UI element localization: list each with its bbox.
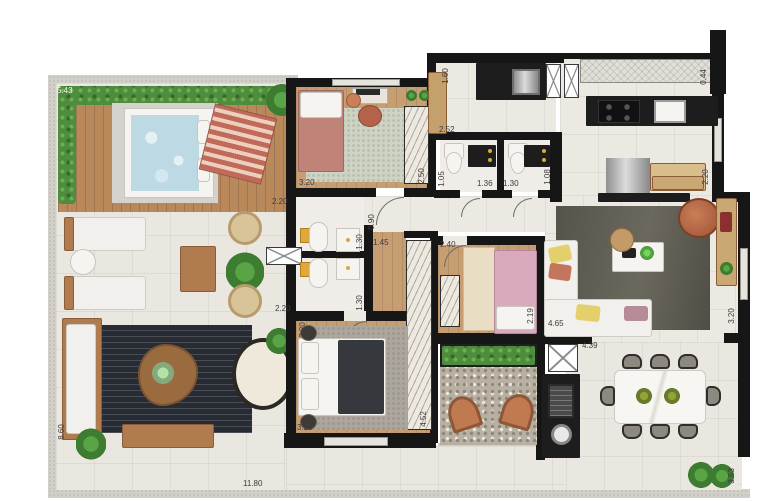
desk-chair	[358, 105, 382, 127]
bedside-basket	[346, 93, 361, 108]
refrigerator	[606, 158, 650, 198]
wall	[738, 347, 750, 457]
grill	[548, 384, 574, 418]
table-flowers	[152, 362, 174, 384]
bbq-sink	[551, 424, 572, 445]
dimension-label: 1.30	[356, 234, 364, 250]
wall	[724, 333, 750, 343]
shaft-door	[546, 64, 561, 98]
dining-chair	[622, 424, 642, 439]
laundry-sink	[512, 69, 540, 95]
dimension-label: 2.40	[440, 241, 456, 249]
bedroom2-wardrobe	[440, 275, 460, 327]
wall	[430, 333, 545, 344]
dining-chair	[650, 424, 670, 439]
wall	[288, 188, 376, 197]
desk-monitor	[356, 89, 380, 95]
wall-column	[710, 30, 726, 94]
kitchen-cabinet	[652, 176, 704, 190]
sun-lounger-head	[64, 276, 74, 310]
dimension-label: 11.80	[243, 480, 262, 488]
dimension-label: 3.20	[297, 424, 313, 432]
floor-plan: 5.43 1.60 0.44 3.20 2.50 2.52 1.05 1.36 …	[0, 0, 773, 501]
wood-bench	[122, 424, 214, 448]
dimension-label: 1.30	[356, 295, 364, 311]
dimension-label: 5.43	[57, 87, 73, 95]
bath-c-vanity	[468, 145, 496, 167]
corridor-wardrobe	[406, 240, 432, 430]
hot-tub-water	[131, 115, 199, 191]
wicker-chair	[228, 284, 262, 318]
dimension-label: 1.05	[438, 171, 446, 187]
round-side-table	[610, 228, 634, 252]
master-duvet	[338, 340, 384, 414]
bedroom1-pillow	[300, 92, 342, 118]
bath-a-tub	[309, 222, 328, 252]
wall	[434, 190, 460, 198]
window	[324, 437, 388, 446]
window	[740, 248, 748, 300]
dining-chair	[622, 354, 642, 369]
terrace-edge-bottom	[48, 489, 750, 498]
sun-lounger	[64, 276, 146, 310]
dimension-label: 2.20	[275, 305, 291, 313]
dimension-label: 4.65	[548, 320, 564, 328]
table-flowers	[640, 246, 654, 260]
dimension-label: 2.20	[299, 322, 307, 338]
dimension-label: 3.20	[728, 308, 736, 324]
wall	[538, 190, 562, 198]
dimension-label: 0.90	[368, 214, 376, 230]
dining-chair	[650, 354, 670, 369]
door-opening	[344, 311, 366, 321]
centerpiece	[636, 388, 652, 404]
bath-b-tub	[309, 258, 328, 288]
kitchen-top-counter	[580, 59, 711, 83]
dimension-label: 1.08	[544, 169, 552, 185]
dimension-label: 1.60	[442, 68, 450, 84]
window	[332, 79, 400, 86]
wall	[434, 53, 564, 63]
cushion-terracotta	[548, 263, 572, 282]
console-decor	[720, 212, 732, 232]
cushion-mauve	[624, 306, 648, 321]
wall	[294, 251, 366, 258]
tv-console	[598, 193, 690, 202]
dimension-label: 0.44	[700, 69, 708, 85]
dimension-label: 3.53	[728, 468, 736, 484]
dimension-label: 8.60	[58, 424, 66, 440]
outdoor-sofa	[66, 324, 96, 434]
dimension-label: 1.30	[503, 180, 519, 188]
dining-chair	[678, 354, 698, 369]
kitchen-sink	[654, 100, 686, 123]
faucet	[542, 158, 546, 162]
faucet	[488, 158, 492, 162]
plant	[76, 428, 106, 460]
faucet	[542, 149, 546, 153]
dining-chair	[678, 424, 698, 439]
snack-table	[180, 246, 216, 292]
faucet	[346, 238, 350, 242]
wicker-chair	[228, 211, 262, 245]
dimension-label: 3.20	[299, 179, 315, 187]
sun-lounger-head	[64, 217, 74, 251]
large-plant-pot	[678, 198, 720, 238]
cooktop	[598, 100, 640, 123]
dimension-label: 2.50	[418, 168, 426, 184]
shaft-door	[548, 344, 578, 372]
bath-d-vanity	[524, 145, 550, 167]
shaft-door	[564, 64, 579, 98]
sun-lounger	[64, 217, 146, 251]
wall	[364, 225, 373, 317]
terrace-door-panel	[266, 247, 302, 265]
faucet	[488, 149, 492, 153]
dining-table	[614, 370, 706, 424]
dimension-label: 1.36	[477, 180, 493, 188]
console-plant	[720, 262, 733, 275]
dimension-label: 4.52	[420, 411, 428, 427]
hedge-left	[58, 86, 76, 204]
dining-chair	[600, 386, 615, 406]
wall	[404, 231, 438, 238]
bedroom2-rug	[463, 247, 495, 331]
dimension-label: 2.20	[272, 198, 288, 206]
shelf-plant	[406, 90, 417, 101]
cushion-yellow	[575, 304, 601, 322]
dimension-label: 2.20	[702, 169, 710, 185]
dining-chair	[706, 386, 721, 406]
master-pillow	[301, 342, 319, 374]
dimension-label: 4.39	[582, 342, 598, 350]
side-table-round	[70, 249, 96, 275]
master-pillow	[301, 378, 319, 410]
centerpiece	[664, 388, 680, 404]
planter-plants	[442, 346, 535, 365]
dimension-label: 2.52	[439, 126, 455, 134]
wall	[482, 190, 512, 198]
dimension-label: 2.19	[527, 308, 535, 324]
dimension-label: 1.45	[373, 239, 389, 247]
faucet	[346, 266, 350, 270]
